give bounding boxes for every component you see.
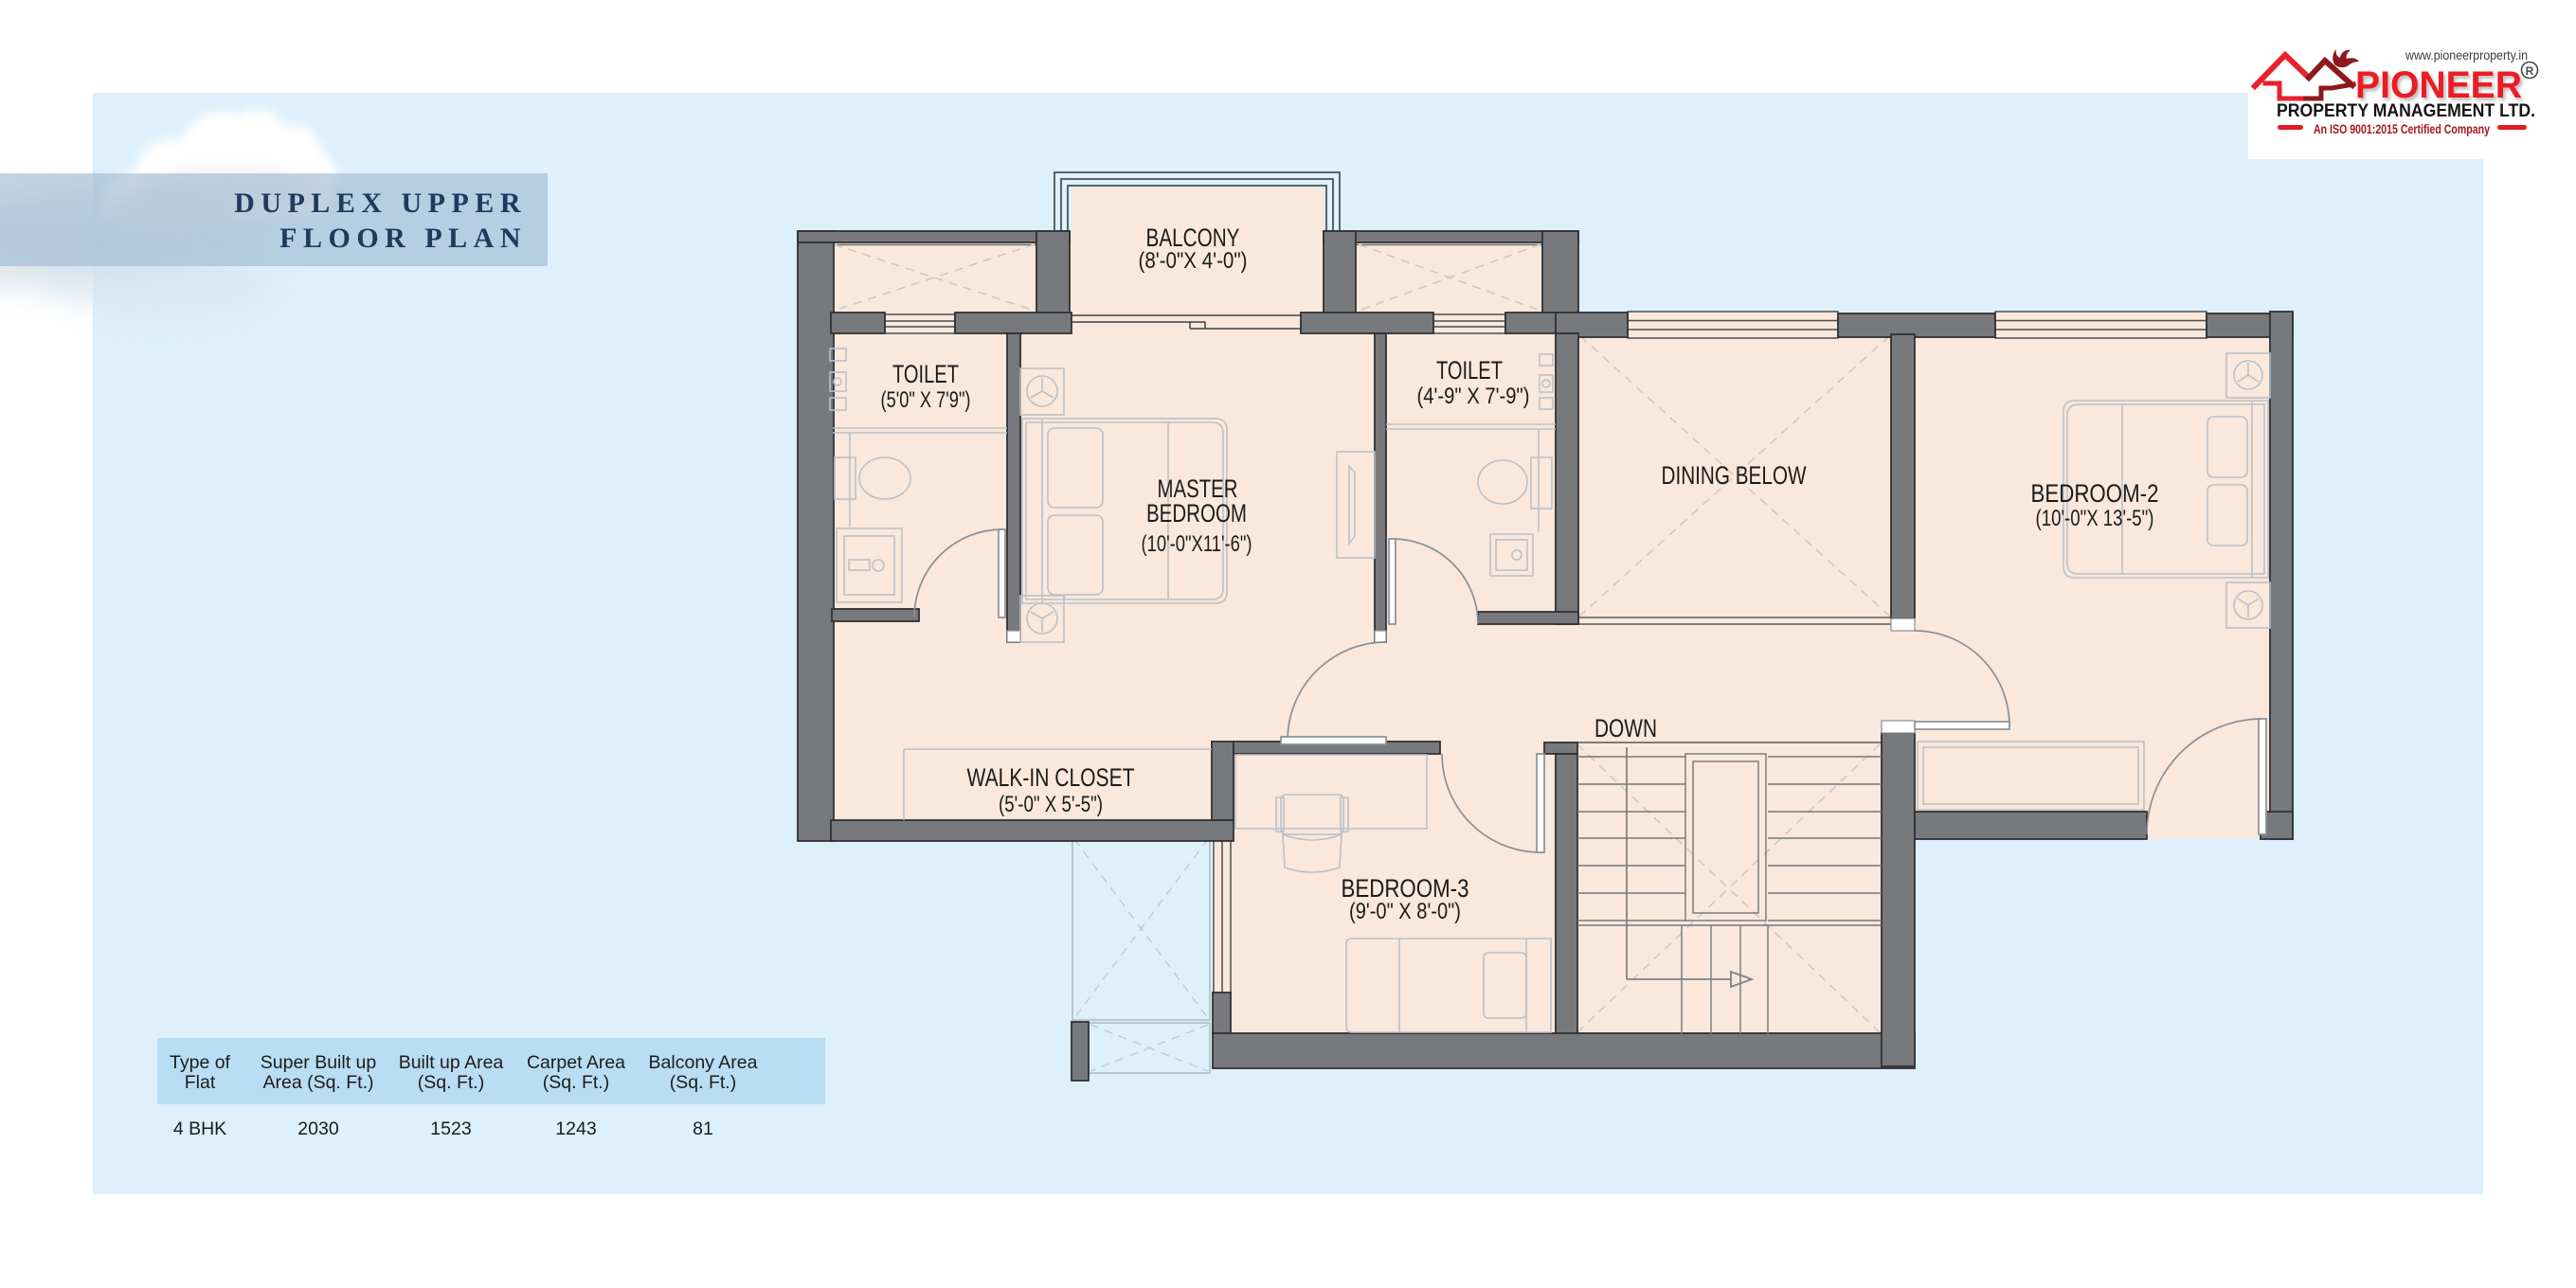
svg-text:(5'0" X 7'9"): (5'0" X 7'9") (881, 387, 971, 413)
svg-text:81: 81 (693, 1118, 713, 1139)
svg-text:Flat: Flat (185, 1072, 216, 1093)
svg-text:R: R (2526, 64, 2534, 78)
svg-text:PIONEER: PIONEER (2355, 64, 2522, 106)
svg-text:WALK-IN CLOSET: WALK-IN CLOSET (967, 763, 1135, 792)
svg-text:Super Built up: Super Built up (261, 1052, 377, 1073)
svg-text:DUPLEX UPPER: DUPLEX UPPER (234, 188, 527, 219)
svg-text:4 BHK: 4 BHK (173, 1118, 226, 1139)
svg-text:BEDROOM-2: BEDROOM-2 (2031, 479, 2159, 508)
svg-text:(10'-0"X11'-6"): (10'-0"X11'-6") (1142, 531, 1252, 557)
svg-text:www.pioneerproperty.in: www.pioneerproperty.in (2405, 48, 2528, 63)
svg-text:1243: 1243 (555, 1118, 596, 1139)
svg-text:Balcony Area: Balcony Area (649, 1052, 758, 1073)
svg-text:1523: 1523 (430, 1118, 471, 1139)
svg-text:2030: 2030 (297, 1118, 339, 1139)
svg-text:(4'-9" X 7'-9"): (4'-9" X 7'-9") (1417, 384, 1530, 409)
svg-text:PROPERTY MANAGEMENT LTD.: PROPERTY MANAGEMENT LTD. (2277, 101, 2535, 121)
svg-text:(10'-0"X 13'-5"): (10'-0"X 13'-5") (2036, 506, 2154, 531)
svg-text:BEDROOM: BEDROOM (1146, 499, 1247, 528)
svg-text:Carpet Area: Carpet Area (527, 1052, 625, 1073)
svg-text:TOILET: TOILET (892, 360, 959, 388)
svg-text:(8'-0"X 4'-0"): (8'-0"X 4'-0") (1139, 248, 1248, 274)
svg-text:Area (Sq. Ft.): Area (Sq. Ft.) (262, 1072, 373, 1093)
svg-text:(Sq. Ft.): (Sq. Ft.) (543, 1072, 609, 1093)
svg-text:(Sq. Ft.): (Sq. Ft.) (670, 1072, 736, 1093)
svg-text:(5'-0" X 5'-5"): (5'-0" X 5'-5") (999, 792, 1103, 817)
svg-text:DINING BELOW: DINING BELOW (1662, 461, 1807, 490)
svg-text:(Sq. Ft.): (Sq. Ft.) (418, 1072, 484, 1093)
svg-text:Built up Area: Built up Area (399, 1052, 504, 1073)
svg-text:FLOOR PLAN: FLOOR PLAN (279, 223, 527, 254)
svg-text:DOWN: DOWN (1594, 714, 1657, 742)
svg-text:TOILET: TOILET (1436, 356, 1503, 385)
svg-text:(9'-0" X 8'-0"): (9'-0" X 8'-0") (1349, 899, 1461, 924)
svg-text:Type of: Type of (170, 1052, 231, 1073)
svg-text:An ISO 9001:2015 Certified Com: An ISO 9001:2015 Certified Company (2314, 121, 2490, 136)
